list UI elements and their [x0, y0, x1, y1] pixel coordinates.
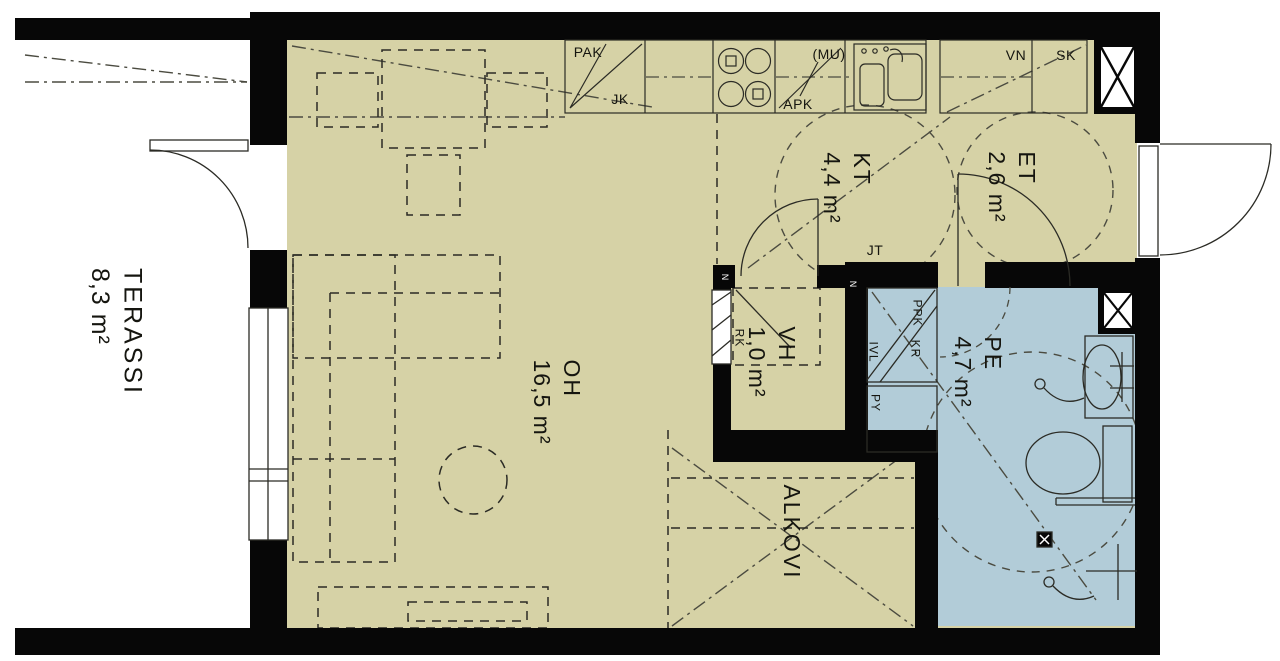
bathroom-floor-lower: [938, 430, 1137, 626]
label-ivl: IVL: [866, 341, 879, 362]
room-area: 4,7 m²: [947, 336, 977, 407]
room-name: KT: [846, 152, 876, 223]
label-ppk: PPK: [910, 299, 923, 326]
room-name: ET: [1011, 151, 1041, 222]
floor-plan-canvas: [0, 0, 1280, 661]
label-mu: (MU): [812, 46, 845, 62]
pe-top-wall-left: [855, 262, 938, 288]
label-jt: JT: [867, 242, 884, 258]
left-wall-mid: [250, 250, 287, 310]
left-wall-upper: [250, 40, 287, 145]
entrance-door: [1139, 144, 1271, 256]
room-label-kt: KT 4,4 m²: [816, 152, 876, 223]
label-pak: PAK: [574, 44, 602, 60]
label-rk: RK: [732, 329, 745, 348]
top-wall: [250, 12, 1160, 40]
room-label-terassi: TERASSI 8,3 m²: [84, 268, 149, 396]
right-wall-lower: [1135, 258, 1160, 630]
room-area: 2,6 m²: [981, 151, 1011, 222]
room-name: VH: [771, 326, 801, 397]
room-label-vh: VH 1,0 m²: [741, 326, 801, 397]
pe-top-wall-right: [985, 262, 1135, 288]
shaft-icon-top: [1094, 40, 1141, 114]
room-area: 8,3 m²: [84, 268, 117, 396]
terrace-top-wall: [15, 18, 250, 40]
label-py: PY: [868, 394, 881, 412]
room-name: ALKOVI: [776, 484, 806, 579]
door-mark-pe: N: [848, 281, 858, 288]
room-name: PE: [977, 336, 1007, 407]
left-wall-lower: [250, 538, 287, 630]
room-area: 4,4 m²: [816, 152, 846, 223]
label-kr: KR: [908, 340, 921, 359]
label-jk: JK: [611, 91, 628, 107]
bottom-wall: [15, 628, 1160, 655]
room-label-oh: OH 16,5 m²: [526, 360, 586, 445]
door-mark-vh: N: [720, 274, 730, 281]
floor-drain-icon: [1037, 532, 1052, 547]
label-apk: APK: [783, 96, 813, 112]
electrical-panel-icon: [712, 290, 731, 364]
living-room-window: [249, 308, 288, 540]
terrace-door: [150, 140, 248, 248]
room-label-pe: PE 4,7 m²: [947, 336, 1007, 407]
label-sk: SK: [1056, 47, 1076, 63]
floor-plan: TERASSI 8,3 m² OH 16,5 m² KT 4,4 m² ET 2…: [0, 0, 1280, 661]
room-name: OH: [556, 360, 586, 445]
room-name: TERASSI: [116, 268, 149, 396]
room-label-alkovi: ALKOVI: [776, 484, 806, 579]
label-vn: VN: [1006, 47, 1026, 63]
shaft-icon-bathroom: [1098, 287, 1138, 334]
alkovi-pe-wall: [915, 430, 938, 628]
room-area: 16,5 m²: [526, 360, 556, 445]
room-label-et: ET 2,6 m²: [981, 151, 1041, 222]
alkovi-top-wall: [713, 430, 938, 462]
